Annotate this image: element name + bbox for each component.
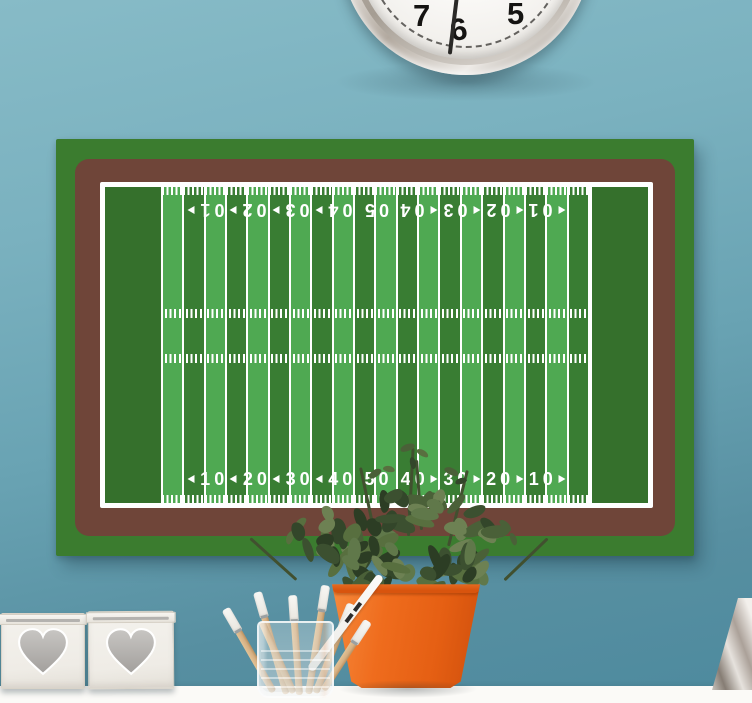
sideline-tick-marks (311, 187, 332, 195)
yard-digit: 0 (214, 468, 224, 490)
sideline-tick-marks (504, 187, 525, 195)
clock-number-7: 7 (413, 0, 430, 31)
yard-stripe (355, 187, 376, 503)
yard-number-10-top: 10 (187, 199, 224, 221)
sideline-tick-marks (162, 495, 183, 503)
yard-digit: 0 (500, 468, 510, 490)
yard-digit: 0 (257, 199, 267, 221)
sideline-tick-marks (504, 495, 525, 503)
hash-marks (207, 309, 223, 318)
yard-stripe (376, 187, 397, 503)
hash-marks (357, 354, 373, 363)
yard-digit: 2 (243, 468, 253, 490)
hash-marks (549, 309, 565, 318)
yard-digit: 0 (457, 199, 467, 221)
hash-marks (463, 354, 479, 363)
sideline-tick-marks (482, 495, 503, 503)
yard-digit: 4 (328, 199, 338, 221)
sideline-tick-marks (290, 495, 311, 503)
metal-object-edge (698, 598, 752, 690)
sideline-tick-marks (205, 187, 226, 195)
sideline-tick-marks (269, 187, 290, 195)
field-boundary: 102030405040302010 102030405040302010 (100, 182, 653, 508)
yard-stripe (547, 187, 568, 503)
playing-field: 102030405040302010 102030405040302010 (161, 187, 592, 503)
yard-stripe (569, 187, 590, 503)
glass-cup (257, 621, 334, 698)
sideline-tick-marks (418, 187, 439, 195)
yard-digit: 2 (243, 199, 253, 221)
room-scene: 7 6 5 102030405040302010 102030405040302… (0, 0, 752, 703)
hash-marks (229, 354, 245, 363)
yard-stripe (334, 187, 355, 503)
hash-marks (271, 309, 287, 318)
sideline-tick-marks (568, 495, 589, 503)
hash-marks (549, 354, 565, 363)
yard-digit: 0 (342, 199, 352, 221)
yard-number-30-top: 30 (443, 199, 480, 221)
yard-number-30-bottom: 30 (273, 468, 310, 490)
clock-number-5: 5 (507, 0, 524, 29)
yard-digit: 0 (300, 468, 310, 490)
hash-marks (570, 309, 586, 318)
pot-shadow (338, 680, 478, 698)
arrow-left-icon (230, 475, 237, 483)
endzone-right (592, 187, 648, 503)
yard-number-10-bottom: 10 (529, 468, 566, 490)
endzone-left (105, 187, 161, 503)
sideline-tick-marks (546, 495, 567, 503)
hash-marks (271, 354, 287, 363)
brush-tip (288, 595, 299, 622)
yard-stripe (505, 187, 526, 503)
sideline-tick-marks (568, 187, 589, 195)
hash-marks (250, 354, 266, 363)
heart-box-lid (0, 614, 87, 625)
sideline-tick-marks (226, 187, 247, 195)
yard-number-30-top: 30 (273, 199, 310, 221)
sideline-tick-marks (247, 187, 268, 195)
yard-digit: 0 (543, 468, 553, 490)
hash-marks (378, 309, 394, 318)
yard-numbers-top-row: 102030405040302010 (163, 199, 590, 221)
sideline-tick-marks (546, 187, 567, 195)
hash-marks (165, 354, 181, 363)
sideline-tick-marks (354, 187, 375, 195)
heart-box-lid-slot (93, 617, 169, 621)
sideline-tick-marks (269, 495, 290, 503)
sideline-tick-marks (375, 187, 396, 195)
yard-stripe (206, 187, 227, 503)
arrow-right-icon (559, 206, 566, 214)
hash-marks (314, 309, 330, 318)
yard-stripe (312, 187, 333, 503)
hash-marks (399, 309, 415, 318)
yard-stripe (462, 187, 483, 503)
hash-marks (442, 309, 458, 318)
hash-marks (421, 354, 437, 363)
yard-digit: 0 (257, 468, 267, 490)
yard-number-20-bottom: 20 (486, 468, 523, 490)
arrow-right-icon (516, 475, 523, 483)
yard-stripe (248, 187, 269, 503)
hash-marks (399, 354, 415, 363)
yard-digit: 0 (214, 199, 224, 221)
hash-marks (528, 309, 544, 318)
hash-marks (293, 354, 309, 363)
yard-number-20-top: 20 (230, 199, 267, 221)
yard-number-40-top: 40 (401, 199, 438, 221)
hash-marks (442, 354, 458, 363)
arrow-right-icon (559, 475, 566, 483)
yard-digit: 1 (529, 199, 539, 221)
yard-digit: 4 (401, 199, 411, 221)
arrow-right-icon (431, 206, 438, 214)
hash-marks (570, 354, 586, 363)
yard-number-40-bottom: 40 (315, 468, 352, 490)
sideline-tick-marks (482, 187, 503, 195)
sideline-tick-marks (226, 495, 247, 503)
hash-marks (250, 309, 266, 318)
sideline-tick-marks (333, 495, 354, 503)
sideline-tick-marks (525, 187, 546, 195)
yard-number-20-top: 20 (486, 199, 523, 221)
arrow-left-icon (187, 206, 194, 214)
yard-number-40-top: 40 (315, 199, 352, 221)
field-turf: 102030405040302010 102030405040302010 (105, 187, 648, 503)
sideline-tick-marks (290, 187, 311, 195)
hash-marks (335, 309, 351, 318)
yard-stripe (270, 187, 291, 503)
hash-marks (463, 309, 479, 318)
yard-stripe (163, 187, 184, 503)
arrow-right-icon (431, 475, 438, 483)
hash-marks (485, 309, 501, 318)
hash-marks (229, 309, 245, 318)
yard-stripe (440, 187, 461, 503)
hash-marks (165, 309, 181, 318)
yard-digit: 0 (300, 199, 310, 221)
yard-number-20-bottom: 20 (230, 468, 267, 490)
hash-marks (378, 354, 394, 363)
arrow-right-icon (473, 475, 480, 483)
yard-stripe (398, 187, 419, 503)
arrow-left-icon (273, 206, 280, 214)
sideline-tick-marks (183, 187, 204, 195)
yard-digit: 0 (415, 199, 425, 221)
arrow-left-icon (315, 475, 322, 483)
glass-ridges (261, 650, 330, 692)
hash-marks (506, 309, 522, 318)
yard-digit: 0 (500, 199, 510, 221)
yard-digit: 1 (529, 468, 539, 490)
heart-box-right (88, 611, 175, 690)
hash-marks (186, 354, 202, 363)
arrow-left-icon (315, 206, 322, 214)
yard-digit: 1 (200, 199, 210, 221)
heart-cutout (105, 627, 157, 675)
hash-marks (528, 354, 544, 363)
yard-number-10-bottom: 10 (187, 468, 224, 490)
arrow-left-icon (230, 206, 237, 214)
heart-box-left (1, 613, 85, 689)
sideline-tick-marks (205, 495, 226, 503)
yard-digit: 1 (200, 468, 210, 490)
hash-marks (335, 354, 351, 363)
sideline-tick-marks (247, 495, 268, 503)
hash-marks (293, 309, 309, 318)
sideline-tick-marks (439, 187, 460, 195)
yard-number-50-top: 50 (364, 199, 388, 221)
sideline-tick-marks (397, 187, 418, 195)
yard-stripe (291, 187, 312, 503)
yard-stripe (526, 187, 547, 503)
heart-cutout (17, 628, 69, 676)
hash-marks (421, 309, 437, 318)
hash-marks (485, 354, 501, 363)
arrow-left-icon (187, 475, 194, 483)
heart-box-lid (86, 612, 176, 624)
sideline-tick-marks (461, 187, 482, 195)
arrow-right-icon (473, 206, 480, 214)
hash-marks (314, 354, 330, 363)
yard-digit: 2 (486, 199, 496, 221)
yard-number-10-top: 10 (529, 199, 566, 221)
yard-digit: 2 (486, 468, 496, 490)
hash-marks (506, 354, 522, 363)
yard-digit: 0 (379, 199, 389, 221)
arrow-right-icon (516, 206, 523, 214)
yard-digit: 5 (364, 199, 374, 221)
sideline-tick-marks (183, 495, 204, 503)
sideline-tick-marks (333, 187, 354, 195)
football-field-poster: 102030405040302010 102030405040302010 (56, 139, 694, 556)
yard-digit: 0 (342, 468, 352, 490)
wall-clock: 7 6 5 (340, 0, 592, 75)
yard-digit: 4 (328, 468, 338, 490)
yard-stripe (483, 187, 504, 503)
hash-marks (186, 309, 202, 318)
arrow-left-icon (273, 475, 280, 483)
yard-digit: 3 (286, 468, 296, 490)
heart-box-lid-slot (6, 619, 80, 622)
yard-digit: 3 (443, 199, 453, 221)
hash-marks (357, 309, 373, 318)
yard-stripe (184, 187, 205, 503)
yard-digit: 3 (286, 199, 296, 221)
sideline-tick-marks (311, 495, 332, 503)
sideline-tick-marks (525, 495, 546, 503)
yard-digit: 0 (543, 199, 553, 221)
yard-stripe (227, 187, 248, 503)
hash-marks (207, 354, 223, 363)
sideline-tick-marks (162, 187, 183, 195)
